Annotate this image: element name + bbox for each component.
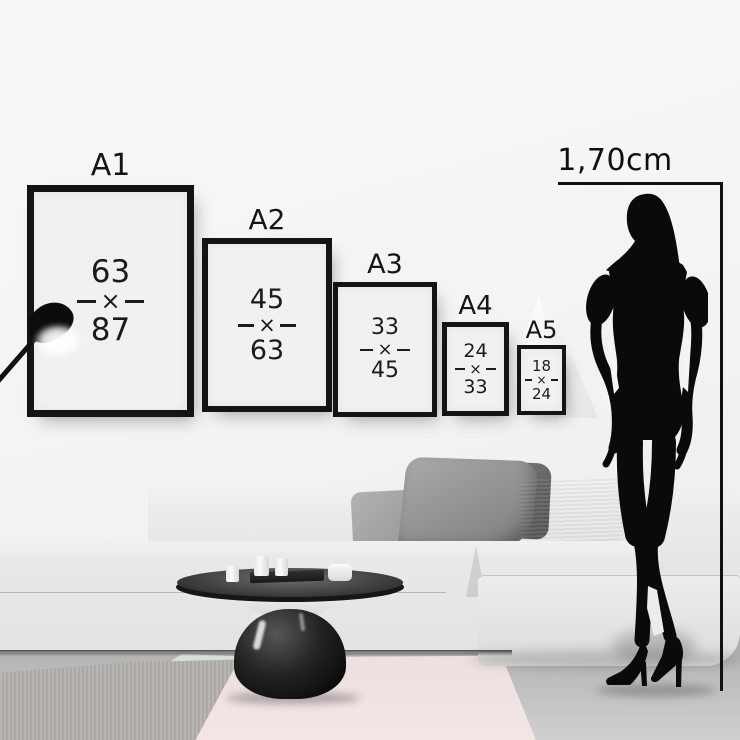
dash-right [125, 300, 144, 303]
frame-a2-width-value: 45 [238, 285, 296, 315]
silhouette-heel-left [640, 660, 647, 686]
lamp-glow [34, 324, 82, 358]
candle [275, 558, 288, 576]
frame-a2-height-value: 63 [238, 336, 296, 366]
frame-a4-separator: × [455, 362, 496, 377]
multiply-symbol: × [377, 341, 392, 359]
dash-left [238, 324, 254, 327]
frame-a2: A2 45 × 63 [202, 238, 332, 412]
silhouette-heel-right [676, 654, 682, 687]
frame-a5-height-value: 24 [525, 386, 557, 403]
dash-right [397, 349, 410, 351]
silhouette-calf-front [638, 530, 645, 640]
frame-a4: A4 24 × 33 [442, 322, 509, 416]
frame-a3-label: A3 [318, 249, 452, 280]
frame-a5-width-value: 18 [525, 358, 557, 375]
frame-a2-dimensions: 45 × 63 [238, 285, 296, 365]
frame-a3: A3 33 × 45 [333, 282, 437, 417]
dash-left [360, 349, 373, 351]
frame-a3-height-value: 45 [360, 359, 409, 383]
frame-a4-height-value: 33 [455, 377, 496, 398]
height-label: 1,70cm [545, 143, 685, 178]
height-measure-line-vertical [720, 182, 723, 691]
frame-a1-separator: × [77, 289, 143, 313]
size-guide-scene: A1 63 × 87 A2 45 × 63 A3 33 [0, 0, 740, 740]
dash-left [525, 379, 532, 381]
round-box [328, 564, 352, 581]
frame-a1-width-value: 63 [77, 255, 143, 289]
multiply-symbol: × [100, 289, 120, 313]
dash-left [77, 300, 96, 303]
frame-a1-height-value: 87 [77, 313, 143, 347]
frame-a5-dimensions: 18 × 24 [525, 358, 557, 403]
frame-a2-separator: × [238, 315, 296, 336]
frame-a3-separator: × [360, 341, 409, 359]
frame-a4-width-value: 24 [455, 341, 496, 362]
dash-right [551, 379, 558, 381]
candle [254, 556, 269, 576]
height-measure-line-horizontal [558, 182, 723, 185]
frame-a5: A5 18 × 24 [517, 345, 566, 415]
dash-right [280, 324, 296, 327]
frame-a4-dimensions: 24 × 33 [455, 341, 496, 398]
dash-left [455, 368, 465, 370]
silhouette-thigh-left [630, 442, 638, 534]
woman-silhouette [584, 188, 708, 693]
frame-a1-dimensions: 63 × 87 [77, 255, 143, 347]
multiply-symbol: × [258, 315, 276, 336]
candle [226, 566, 239, 582]
frame-a3-width-value: 33 [360, 316, 409, 340]
frame-a2-label: A2 [188, 203, 346, 236]
dash-right [486, 368, 496, 370]
multiply-symbol: × [469, 362, 482, 377]
silhouette-thigh-right [653, 442, 664, 536]
frame-a1-label: A1 [14, 148, 207, 183]
frame-a1: A1 63 × 87 [27, 185, 194, 417]
frame-a3-dimensions: 33 × 45 [360, 316, 409, 382]
table-base [234, 609, 346, 699]
frame-a5-label: A5 [501, 316, 582, 344]
silhouette-hand-left [606, 434, 615, 464]
